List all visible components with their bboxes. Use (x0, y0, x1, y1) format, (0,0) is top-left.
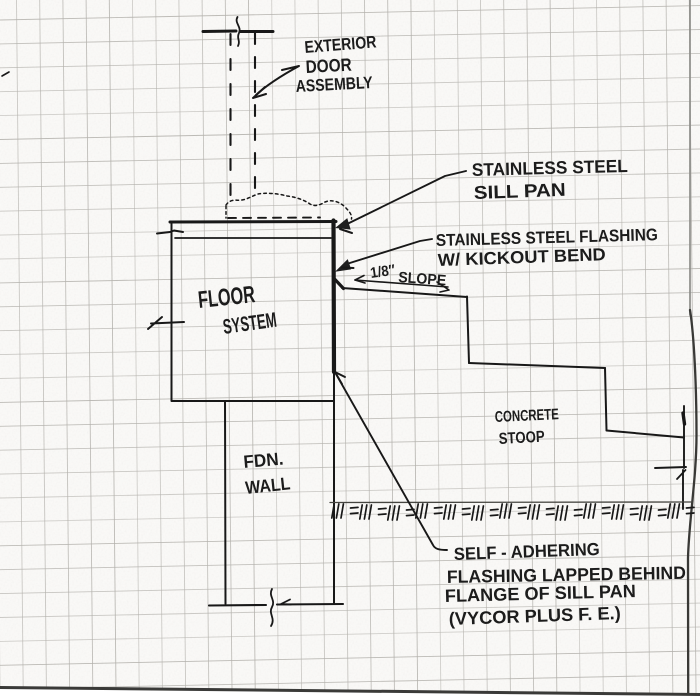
svg-text:ASSEMBLY: ASSEMBLY (295, 73, 373, 96)
svg-text:1/8″: 1/8″ (369, 262, 396, 282)
svg-text:STAINLESS STEEL: STAINLESS STEEL (472, 156, 628, 180)
svg-text:STOOP: STOOP (498, 429, 545, 448)
svg-text:CONCRETE: CONCRETE (494, 406, 559, 426)
svg-text:SILL PAN: SILL PAN (473, 179, 566, 203)
svg-text:FDN.: FDN. (243, 449, 285, 472)
